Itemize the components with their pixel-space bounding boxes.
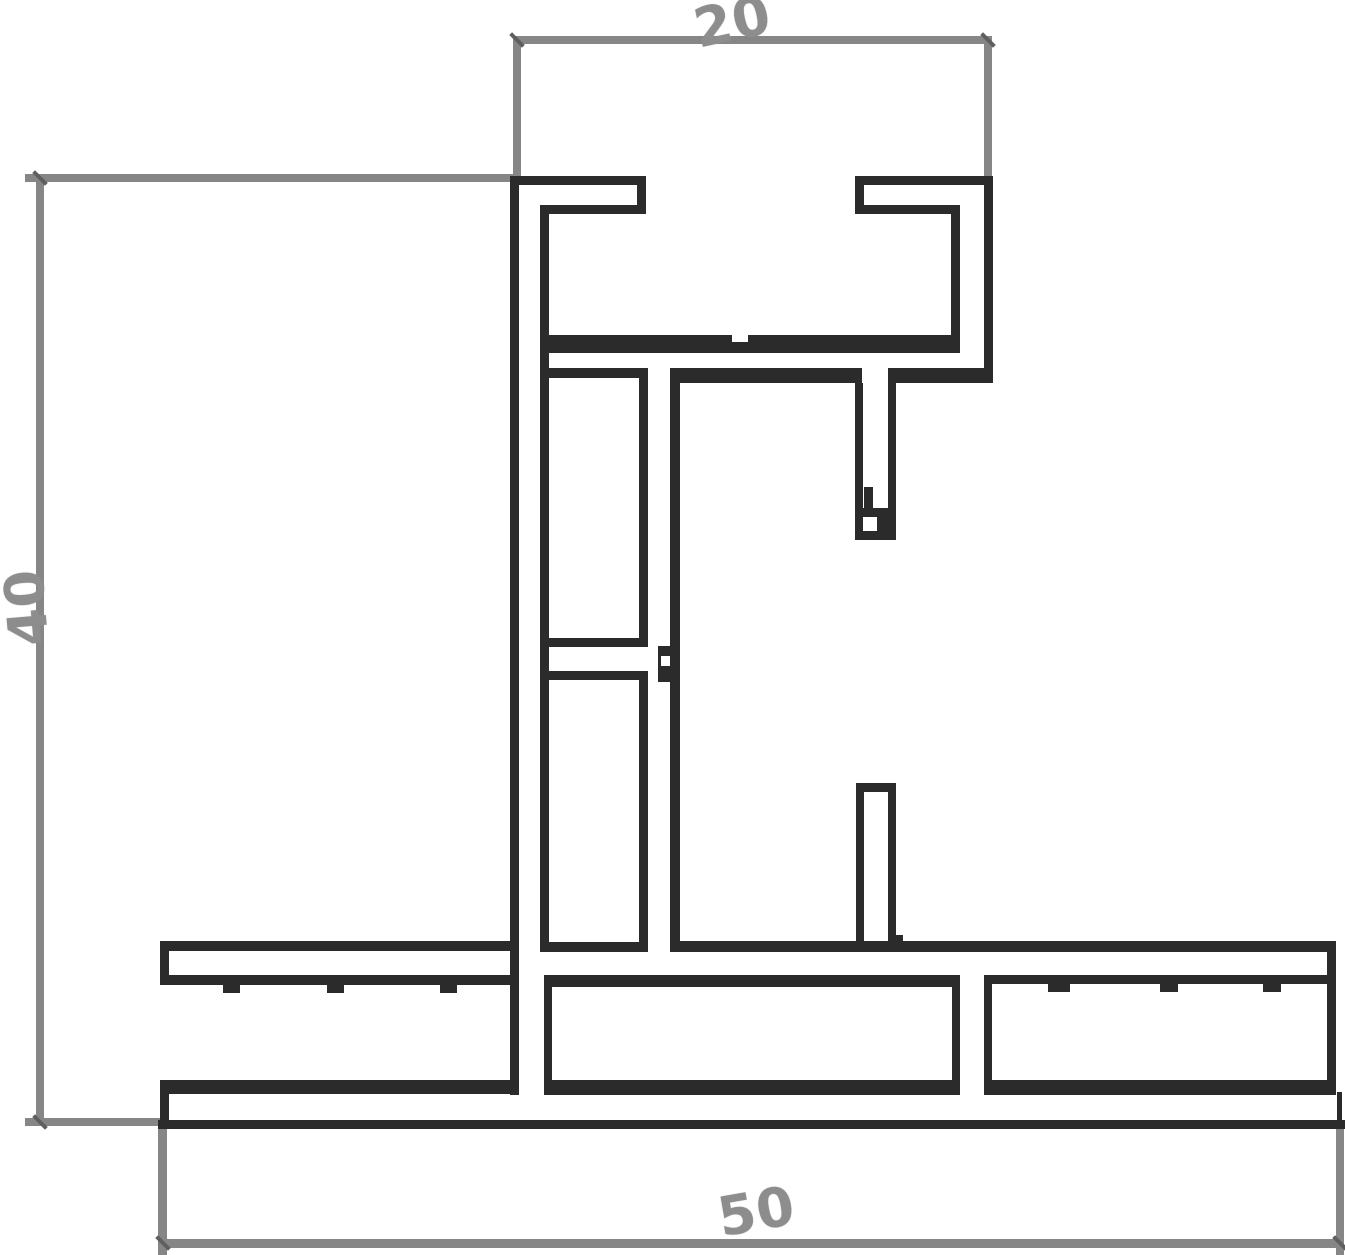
dimension-line	[513, 36, 521, 176]
profile-segment	[855, 531, 896, 540]
profile-segment	[540, 335, 960, 353]
profile-segment	[670, 368, 680, 952]
profile-segment	[540, 942, 648, 952]
profile-segment	[888, 368, 993, 383]
profile-segment	[1160, 983, 1178, 992]
profile-segment	[952, 975, 960, 1095]
profile-segment	[540, 205, 646, 214]
profile-segment	[160, 941, 510, 951]
profile-segment	[670, 941, 1336, 952]
profile-segment	[160, 1080, 169, 1123]
profile-segment	[160, 1080, 518, 1094]
profile-segment	[544, 1080, 960, 1095]
profile-segment	[440, 985, 457, 993]
profile-segment	[327, 985, 344, 993]
profile-segment	[1263, 983, 1281, 992]
profile-notch	[732, 335, 748, 342]
profile-segment	[984, 1080, 1336, 1095]
profile-segment	[544, 975, 960, 987]
dimension-label-top-width: 20	[688, 0, 777, 60]
dimension-line	[36, 174, 44, 1126]
technical-drawing-canvas: 20 40 50	[0, 0, 1345, 1255]
profile-segment	[951, 205, 960, 353]
profile-segment	[877, 517, 896, 531]
dimension-label-bottom-width: 50	[713, 1174, 800, 1249]
profile-segment	[540, 638, 648, 647]
profile-segment	[984, 975, 992, 1095]
profile-segment	[855, 383, 863, 540]
profile-segment	[540, 205, 549, 952]
profile-segment	[540, 368, 648, 378]
dimension-line	[158, 1120, 167, 1255]
profile-segment	[670, 368, 862, 383]
profile-segment	[540, 671, 648, 680]
profile-segment	[544, 975, 552, 1095]
profile-segment	[855, 205, 960, 214]
dimension-label-left-height: 40	[0, 566, 61, 648]
profile-segment	[510, 176, 519, 1095]
profile-segment	[856, 783, 864, 952]
profile-segment	[864, 487, 873, 508]
dimension-line	[1336, 1128, 1344, 1255]
profile-segment	[160, 975, 518, 985]
profile-notch	[661, 656, 670, 666]
profile-segment	[158, 1120, 1345, 1129]
profile-segment	[639, 671, 648, 952]
profile-segment	[863, 508, 888, 517]
dimension-line	[984, 36, 992, 176]
profile-segment	[223, 985, 240, 993]
profile-segment	[888, 783, 896, 952]
profile-segment	[1048, 983, 1070, 992]
profile-segment	[1337, 1092, 1342, 1123]
profile-segment	[984, 176, 993, 383]
profile-segment	[639, 368, 648, 647]
profile-segment	[510, 176, 646, 185]
dimension-line	[25, 174, 517, 182]
profile-segment	[1327, 941, 1336, 1095]
profile-segment	[855, 176, 993, 185]
